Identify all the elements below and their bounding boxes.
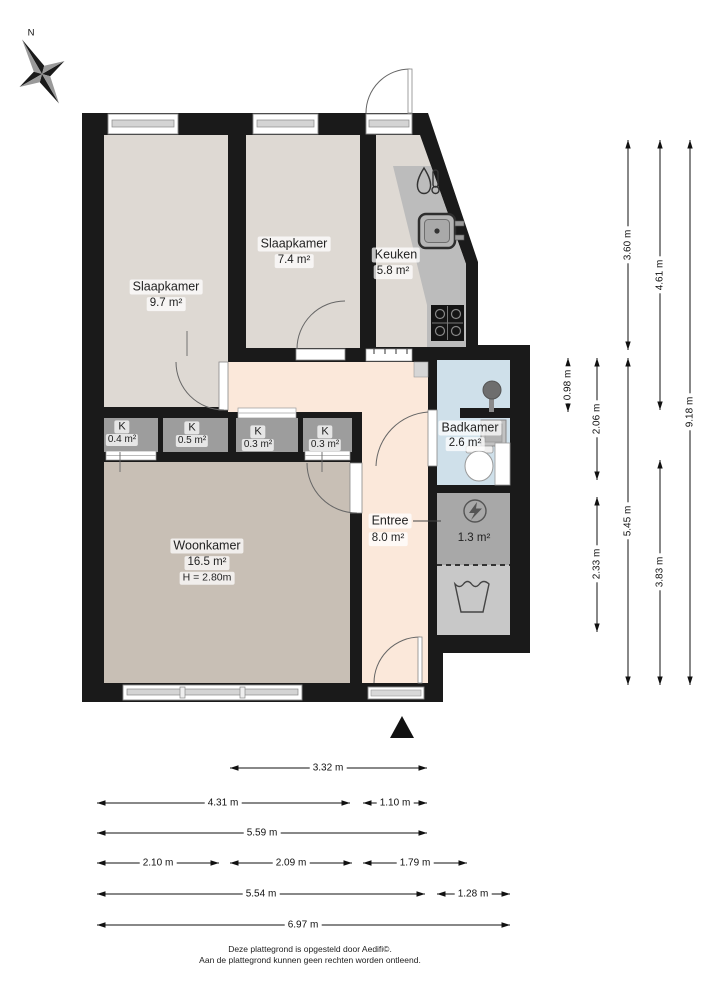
- room-label-slaapkamer1-name: Slaapkamer: [130, 280, 203, 295]
- room-label-kast3-name: K: [250, 425, 265, 438]
- dim-v-9.18: 9.18 m: [685, 394, 696, 431]
- toilet-icon: [465, 446, 493, 481]
- opening-kast3: [238, 408, 296, 418]
- kast4-front: [305, 451, 350, 460]
- dim-v-3.83: 3.83 m: [655, 554, 666, 591]
- room-label-slaapkamer2-area: 7.4 m²: [275, 254, 314, 268]
- duct-shaft: [414, 362, 428, 377]
- shower-tray: [495, 443, 510, 485]
- dim-v-5.45: 5.45 m: [623, 503, 634, 540]
- room-label-woonkamer-name: Woonkamer: [170, 539, 243, 554]
- room-label-woonkamer-height: H = 2.80m: [180, 572, 235, 585]
- dim-h-2.09: 2.09 m: [273, 858, 310, 869]
- dim-h-6.97: 6.97 m: [285, 920, 322, 931]
- room-label-slaapkamer1-area: 9.7 m²: [147, 297, 186, 311]
- room-label-kast2-name: K: [184, 421, 199, 434]
- room-slaapkamer1-floor: [104, 135, 228, 407]
- dim-h-1.10: 1.10 m: [377, 798, 414, 809]
- disclaimer-line-1: Deze plattegrond is opgesteld door Aedif…: [228, 944, 392, 954]
- room-label-badkamer-area: 2.6 m²: [446, 437, 485, 451]
- window-slaapkamer2: [253, 114, 318, 134]
- dim-v-2.33: 2.33 m: [592, 546, 603, 583]
- room-label-kast1-area: 0.4 m²: [106, 434, 138, 446]
- floor-plan-svg: [0, 0, 707, 1000]
- bathroom-partition-wall: [460, 408, 510, 418]
- disclaimer-line-2: Aan de plattegrond kunnen geen rechten w…: [199, 955, 421, 965]
- room-techniek-floor: [437, 493, 510, 565]
- opening-keuken-entree: [366, 349, 412, 361]
- window-woonkamer: [123, 685, 302, 700]
- room-label-entree-name: Entree: [369, 514, 412, 529]
- dim-h-5.59: 5.59 m: [244, 828, 281, 839]
- room-label-badkamer-name: Badkamer: [439, 421, 502, 436]
- room-laundry-floor: [437, 565, 510, 635]
- balcony-door-keuken: [366, 69, 412, 134]
- room-label-keuken-area: 5.8 m²: [374, 265, 413, 279]
- room-label-woonkamer-area: 16.5 m²: [185, 556, 230, 570]
- room-label-techniek-area: 1.3 m²: [455, 532, 494, 546]
- dim-h-1.28: 1.28 m: [455, 889, 492, 900]
- room-label-kast2-area: 0.5 m²: [176, 435, 208, 447]
- dim-h-2.10: 2.10 m: [140, 858, 177, 869]
- dim-h-4.31: 4.31 m: [205, 798, 242, 809]
- window-slaapkamer1: [108, 114, 178, 134]
- entrance-arrow-icon: [390, 716, 414, 738]
- dim-v-0.98: 0.98 m: [563, 367, 574, 404]
- kast1-front: [106, 451, 156, 460]
- horizontal-dimensions: [97, 768, 510, 925]
- compass-north-label: N: [28, 28, 35, 39]
- stove-icon: [431, 305, 464, 341]
- room-label-slaapkamer2-name: Slaapkamer: [258, 237, 331, 252]
- dim-v-3.60: 3.60 m: [623, 227, 634, 264]
- dim-h-3.32: 3.32 m: [310, 763, 347, 774]
- dim-h-1.79: 1.79 m: [397, 858, 434, 869]
- dim-h-5.54: 5.54 m: [243, 889, 280, 900]
- room-label-kast3-area: 0.3 m²: [242, 439, 274, 451]
- room-label-entree-area: 8.0 m²: [369, 532, 408, 546]
- room-label-kast4-area: 0.3 m²: [309, 439, 341, 451]
- room-label-kast1-name: K: [114, 420, 129, 433]
- dim-v-2.06: 2.06 m: [592, 401, 603, 438]
- floor-plan-page: N Slaapkamer 9.7 m² Slaapkamer 7.4 m² Ke…: [0, 0, 707, 1000]
- room-label-keuken-name: Keuken: [372, 248, 420, 263]
- room-label-kast4-name: K: [317, 425, 332, 438]
- dim-v-4.61: 4.61 m: [655, 257, 666, 294]
- vertical-dimensions: [568, 140, 690, 685]
- compass-rose-icon: [0, 26, 82, 116]
